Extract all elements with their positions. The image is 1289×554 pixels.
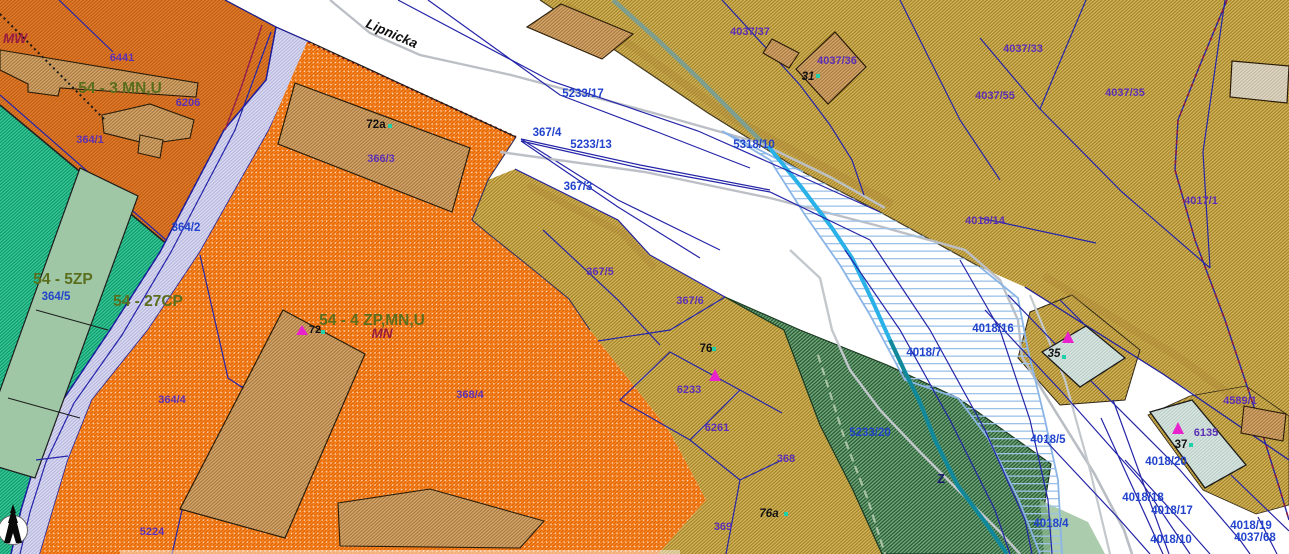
svg-text:364/4: 364/4 [158, 394, 186, 406]
svg-text:35: 35 [1048, 348, 1061, 360]
svg-text:367/5: 367/5 [586, 266, 614, 278]
svg-text:367/4: 367/4 [533, 127, 562, 139]
svg-text:4037/36: 4037/36 [817, 55, 857, 67]
svg-text:6261: 6261 [705, 422, 729, 434]
svg-text:367/6: 367/6 [676, 295, 704, 307]
svg-text:4018/20: 4018/20 [1145, 456, 1187, 468]
svg-text:4018/7: 4018/7 [906, 347, 941, 359]
svg-text:4037/55: 4037/55 [975, 90, 1015, 102]
svg-text:368/4: 368/4 [456, 389, 484, 401]
svg-text:4018/17: 4018/17 [1151, 505, 1193, 517]
svg-text:5233/13: 5233/13 [570, 139, 612, 151]
svg-text:5318/10: 5318/10 [733, 139, 775, 151]
svg-text:4018/5: 4018/5 [1030, 434, 1066, 446]
svg-text:6233: 6233 [677, 384, 701, 396]
svg-text:364/5: 364/5 [42, 291, 71, 303]
svg-text:4018/16: 4018/16 [972, 323, 1014, 335]
svg-text:76: 76 [700, 343, 713, 355]
svg-text:4018/4: 4018/4 [1033, 518, 1069, 530]
svg-text:4037/33: 4037/33 [1003, 43, 1043, 55]
svg-text:364/1: 364/1 [76, 134, 104, 146]
svg-text:54 - 5ZP: 54 - 5ZP [33, 271, 92, 288]
svg-text:4018/18: 4018/18 [1122, 492, 1164, 504]
svg-text:5233/20: 5233/20 [849, 427, 891, 439]
svg-text:4018/19: 4018/19 [1230, 520, 1272, 532]
svg-text:76a: 76a [759, 508, 779, 520]
svg-text:54 - 27CP: 54 - 27CP [113, 293, 183, 310]
svg-text:54 - 3 MN,U: 54 - 3 MN,U [78, 80, 162, 97]
svg-text:6441: 6441 [110, 52, 134, 64]
svg-text:Z: Z [937, 471, 945, 486]
svg-text:6135: 6135 [1194, 427, 1218, 439]
svg-text:5233/17: 5233/17 [562, 88, 604, 100]
svg-text:367/3: 367/3 [564, 181, 593, 193]
svg-text:368: 368 [777, 453, 795, 465]
svg-text:4017/1: 4017/1 [1184, 195, 1218, 207]
svg-text:72a: 72a [366, 119, 386, 131]
svg-text:4037/68: 4037/68 [1234, 532, 1276, 544]
svg-text:364/2: 364/2 [172, 222, 201, 234]
svg-text:31: 31 [802, 71, 815, 83]
svg-text:MW: MW [3, 31, 28, 46]
svg-text:369: 369 [714, 521, 732, 533]
svg-text:5224: 5224 [140, 526, 165, 538]
svg-text:4037/35: 4037/35 [1105, 87, 1145, 99]
svg-text:MN: MN [372, 326, 393, 341]
svg-text:6206: 6206 [176, 97, 200, 109]
svg-text:366/3: 366/3 [367, 153, 395, 165]
svg-text:37: 37 [1175, 439, 1188, 451]
svg-text:4018/14: 4018/14 [965, 215, 1006, 227]
svg-text:4037/37: 4037/37 [730, 26, 770, 38]
svg-text:4018/10: 4018/10 [1150, 534, 1192, 546]
svg-text:4589/1: 4589/1 [1223, 395, 1257, 407]
